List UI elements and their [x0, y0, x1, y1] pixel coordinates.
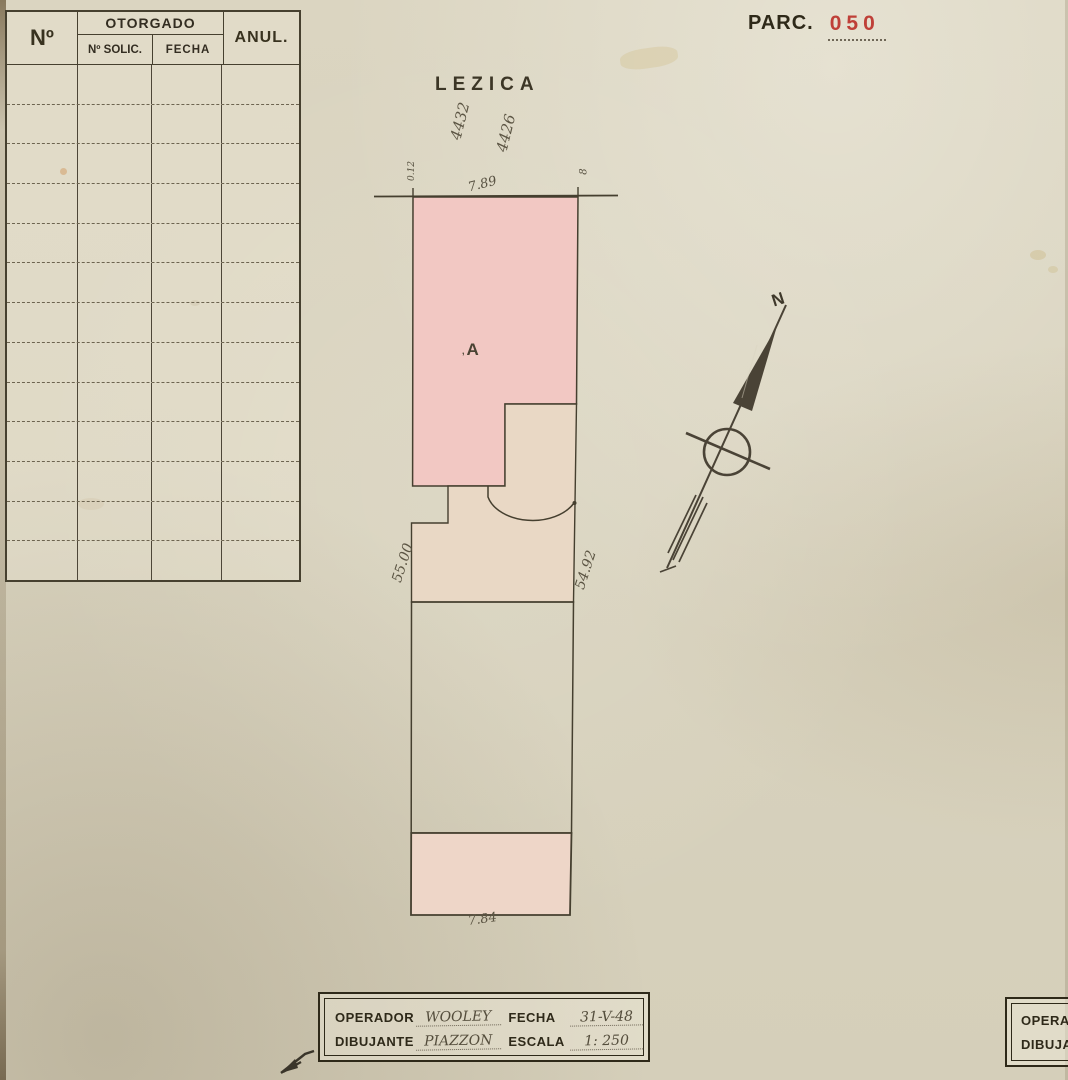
table-row — [7, 105, 299, 145]
table-row — [7, 462, 299, 502]
table-cell — [222, 263, 299, 302]
table-cell — [78, 541, 152, 580]
title-block-corner: OPERADOR DIBUJANTE — [1005, 997, 1068, 1067]
table-cell — [7, 105, 78, 144]
title-block-inner: OPERADOR WOOLEY FECHA 31-V-48 DIBUJANTE … — [324, 998, 644, 1056]
table-body — [7, 65, 299, 580]
parc-number-stamp: 050 — [828, 12, 886, 41]
front-dim-right: 8 — [579, 160, 590, 184]
col-group-otorgado-wrap: OTORGADO Nº SOLIC. FECHA — [78, 12, 223, 64]
dibujante-value: PIAZZON — [416, 1032, 501, 1050]
title-block: OPERADOR WOOLEY FECHA 31-V-48 DIBUJANTE … — [318, 992, 650, 1062]
table-cell — [152, 303, 222, 342]
table-cell — [7, 65, 78, 104]
front-dim-center: 7.89 — [467, 174, 499, 196]
table-cell — [222, 105, 299, 144]
table-cell — [152, 462, 222, 501]
table-row — [7, 422, 299, 462]
col-header-numero: Nº — [7, 12, 78, 64]
street-line — [374, 187, 618, 206]
curved-wall — [488, 486, 577, 520]
table-cell — [78, 184, 152, 223]
table-cell — [222, 502, 299, 541]
table-cell — [7, 343, 78, 382]
table-cell — [7, 502, 78, 541]
registry-table-header: Nº OTORGADO Nº SOLIC. FECHA ANUL. — [7, 12, 299, 65]
table-row — [7, 144, 299, 184]
table-cell — [7, 184, 78, 223]
table-cell — [7, 263, 78, 302]
side-dim-left: 55.00 — [388, 539, 417, 588]
table-cell — [222, 303, 299, 342]
side-dim-right: 54.92 — [571, 546, 600, 595]
operador-label: OPERADOR — [335, 1010, 416, 1025]
table-cell — [7, 541, 78, 580]
compass-arrowhead — [733, 326, 777, 411]
pen-arrow-mark — [281, 1051, 314, 1073]
street-number-left: 4432 — [444, 92, 475, 151]
building-label-tick: , — [462, 346, 466, 356]
dibujante-label: DIBUJANTE — [335, 1034, 416, 1049]
table-cell — [78, 263, 152, 302]
col-header-solicitud: Nº SOLIC. — [78, 35, 152, 64]
table-cell — [78, 462, 152, 501]
table-cell — [222, 224, 299, 263]
col-header-fecha: FECHA — [152, 35, 223, 64]
table-row — [7, 65, 299, 105]
table-cell — [7, 383, 78, 422]
table-row — [7, 263, 299, 303]
table-cell — [152, 263, 222, 302]
table-cell — [78, 383, 152, 422]
table-cell — [7, 303, 78, 342]
table-cell — [78, 422, 152, 461]
table-cell — [222, 343, 299, 382]
paper-stain — [1048, 266, 1058, 273]
scanned-parcel-sheet: Nº OTORGADO Nº SOLIC. FECHA ANUL. PARC. … — [0, 0, 1068, 1080]
table-row — [7, 224, 299, 264]
paper-stain — [1030, 250, 1046, 260]
escala-value: 1: 250 — [570, 1032, 643, 1050]
table-cell — [222, 184, 299, 223]
otorgado-subheaders: Nº SOLIC. FECHA — [78, 35, 223, 64]
patio-area — [412, 404, 577, 602]
rear-building — [411, 833, 572, 915]
table-row — [7, 383, 299, 423]
fecha-value: 31-V-48 — [570, 1008, 643, 1026]
table-cell — [152, 383, 222, 422]
table-cell — [152, 144, 222, 183]
operador-value: WOOLEY — [416, 1008, 501, 1026]
street-name: LEZICA — [435, 74, 540, 96]
table-cell — [7, 144, 78, 183]
building-footprint — [413, 197, 578, 486]
table-cell — [152, 184, 222, 223]
table-cell — [152, 541, 222, 580]
fecha-label: FECHA — [508, 1010, 570, 1025]
compass-fletching — [660, 495, 707, 572]
table-cell — [152, 224, 222, 263]
table-cell — [78, 502, 152, 541]
title-block-row-2: DIBUJANTE PIAZZON ESCALA 1: 250 — [335, 1029, 643, 1053]
title-block-row-1: OPERADOR WOOLEY FECHA 31-V-48 — [335, 1005, 643, 1029]
escala-label: ESCALA — [508, 1034, 570, 1049]
open-yard — [411, 602, 573, 833]
paper-stain — [619, 44, 679, 72]
col-header-otorgado: OTORGADO — [78, 12, 223, 35]
table-cell — [78, 343, 152, 382]
table-cell — [152, 65, 222, 104]
table-row — [7, 303, 299, 343]
registry-table: Nº OTORGADO Nº SOLIC. FECHA ANUL. — [5, 10, 301, 582]
table-cell — [78, 65, 152, 104]
title-block-corner-inner: OPERADOR DIBUJANTE — [1011, 1003, 1068, 1061]
compass-north-label: N — [769, 289, 787, 312]
table-cell — [222, 462, 299, 501]
table-cell — [78, 144, 152, 183]
table-cell — [7, 422, 78, 461]
table-cell — [78, 303, 152, 342]
street-number-right: 4426 — [490, 104, 521, 163]
parc-label: PARC. — [748, 12, 814, 35]
table-cell — [222, 65, 299, 104]
table-cell — [78, 224, 152, 263]
corner-dibujante-label: DIBUJANTE — [1021, 1035, 1068, 1059]
table-row — [7, 502, 299, 542]
table-row — [7, 184, 299, 224]
table-cell — [152, 105, 222, 144]
table-cell — [78, 105, 152, 144]
table-row — [7, 343, 299, 383]
table-cell — [222, 541, 299, 580]
table-cell — [222, 422, 299, 461]
table-cell — [152, 502, 222, 541]
table-cell — [7, 224, 78, 263]
front-dim-left: 0.12 — [407, 157, 417, 185]
building-label: ,A — [462, 340, 480, 360]
col-header-anulado: ANUL. — [223, 12, 299, 64]
table-cell — [152, 422, 222, 461]
corner-operador-label: OPERADOR — [1021, 1011, 1068, 1035]
table-cell — [152, 343, 222, 382]
table-row — [7, 541, 299, 580]
table-cell — [7, 462, 78, 501]
parcel-number-header: PARC. 050 — [748, 12, 886, 41]
compass-rose — [660, 305, 786, 572]
table-cell — [222, 144, 299, 183]
table-cell — [222, 383, 299, 422]
rear-dim: 7.84 — [467, 910, 498, 929]
